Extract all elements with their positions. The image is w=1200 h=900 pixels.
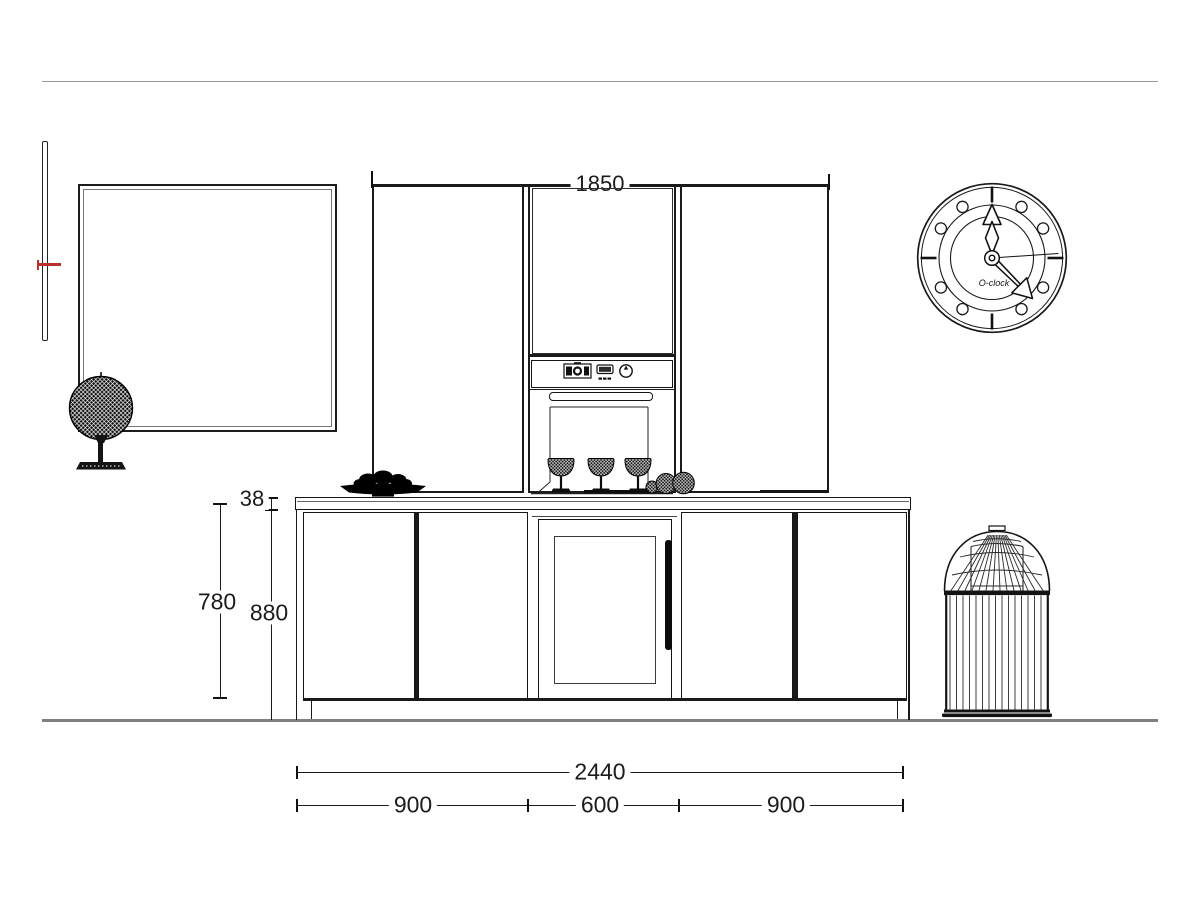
dishwasher-handle — [665, 540, 672, 650]
oven-panel-bottom-line — [530, 389, 674, 390]
worktop — [295, 497, 911, 510]
dim-2440-tick-right — [902, 766, 904, 779]
base-door-left-1 — [303, 512, 415, 699]
cage-dome — [945, 532, 1050, 592]
dim-1850-tick-right — [828, 174, 830, 190]
fruit-bowl — [338, 469, 428, 498]
dim-780-tick-top — [213, 503, 227, 505]
dim-780-tick-bottom — [213, 697, 227, 699]
worktop-edge-line — [297, 501, 909, 502]
dim-sections-tick-4 — [902, 799, 904, 812]
dim-780-label: 780 — [193, 591, 241, 614]
oven-upper-door — [532, 188, 673, 354]
dim-600-label: 600 — [576, 794, 624, 817]
base-door-right-2 — [797, 512, 907, 699]
oven-handle — [549, 392, 653, 401]
sphere-lamp — [58, 371, 144, 472]
dim-880-label: 880 — [245, 602, 293, 625]
cage-top-knob — [989, 526, 1005, 531]
dim-2440-tick-left — [296, 766, 298, 779]
ceiling-line — [42, 81, 1158, 83]
lamp-stem — [98, 437, 103, 463]
clock-brand-label: O-clock — [979, 278, 1010, 288]
wine-glass — [548, 459, 574, 493]
dim-sections-tick-1 — [296, 799, 298, 812]
base-end-panel-right — [908, 510, 910, 720]
base-doors-bottom-edge — [303, 698, 907, 702]
dim-2440-label: 2440 — [569, 761, 630, 784]
birdcage — [941, 524, 1053, 720]
lamp-ball — [70, 377, 133, 440]
cage-base-foot — [942, 714, 1052, 718]
upper-cabinet-left — [372, 185, 524, 493]
right-cabinet-shadow — [760, 490, 828, 493]
base-door-left-2 — [418, 512, 528, 699]
base-door-right-1 — [681, 512, 793, 699]
red-level-mark — [38, 263, 61, 266]
dim-900-left-label: 900 — [389, 794, 437, 817]
dim-900-right-label: 900 — [762, 794, 810, 817]
oven-panel-icons — [562, 362, 638, 388]
oven-timer-icon — [597, 365, 613, 380]
cage-collar-band — [944, 591, 1050, 596]
wall-clock: O-clock — [911, 177, 1073, 339]
dim-1850-tick-left — [371, 171, 373, 188]
dim-sections-tick-2 — [527, 799, 529, 812]
red-level-mark-tick — [37, 260, 39, 270]
decor-sphere-large — [673, 472, 695, 494]
wine-glass — [588, 459, 614, 493]
cage-base-ring — [944, 710, 1050, 713]
oven-panel-top-edge — [530, 354, 674, 357]
clock-hub-center — [989, 255, 995, 261]
oven-display-icon — [564, 362, 591, 378]
dishwasher-top-line — [532, 516, 677, 517]
dim-38-label: 38 — [235, 488, 269, 510]
dim-sections-tick-3 — [678, 799, 680, 812]
cage-body-bars — [950, 596, 1041, 710]
plinth-edge-right — [897, 701, 898, 719]
kitchen-elevation-drawing: 1850 — [0, 0, 1200, 900]
dishwasher-door-panel — [554, 536, 656, 684]
plinth-edge-left — [311, 701, 312, 719]
base-end-panel-left — [296, 510, 298, 720]
oven-knob-icon — [620, 365, 632, 377]
wall-trim-panel — [42, 141, 48, 341]
upper-cabinet-right — [680, 185, 829, 493]
wine-glasses-and-decor — [535, 452, 700, 498]
